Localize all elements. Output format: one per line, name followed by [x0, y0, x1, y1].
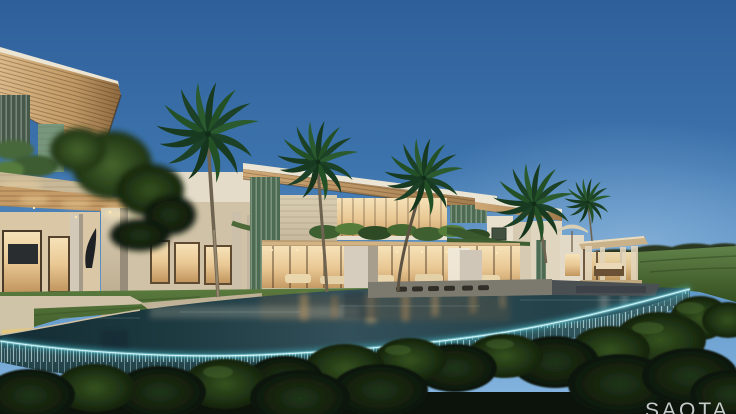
scene	[0, 0, 736, 414]
villa-rendering: SAOTA	[0, 0, 736, 414]
saota-watermark: SAOTA	[645, 399, 730, 414]
cabana	[578, 236, 648, 286]
